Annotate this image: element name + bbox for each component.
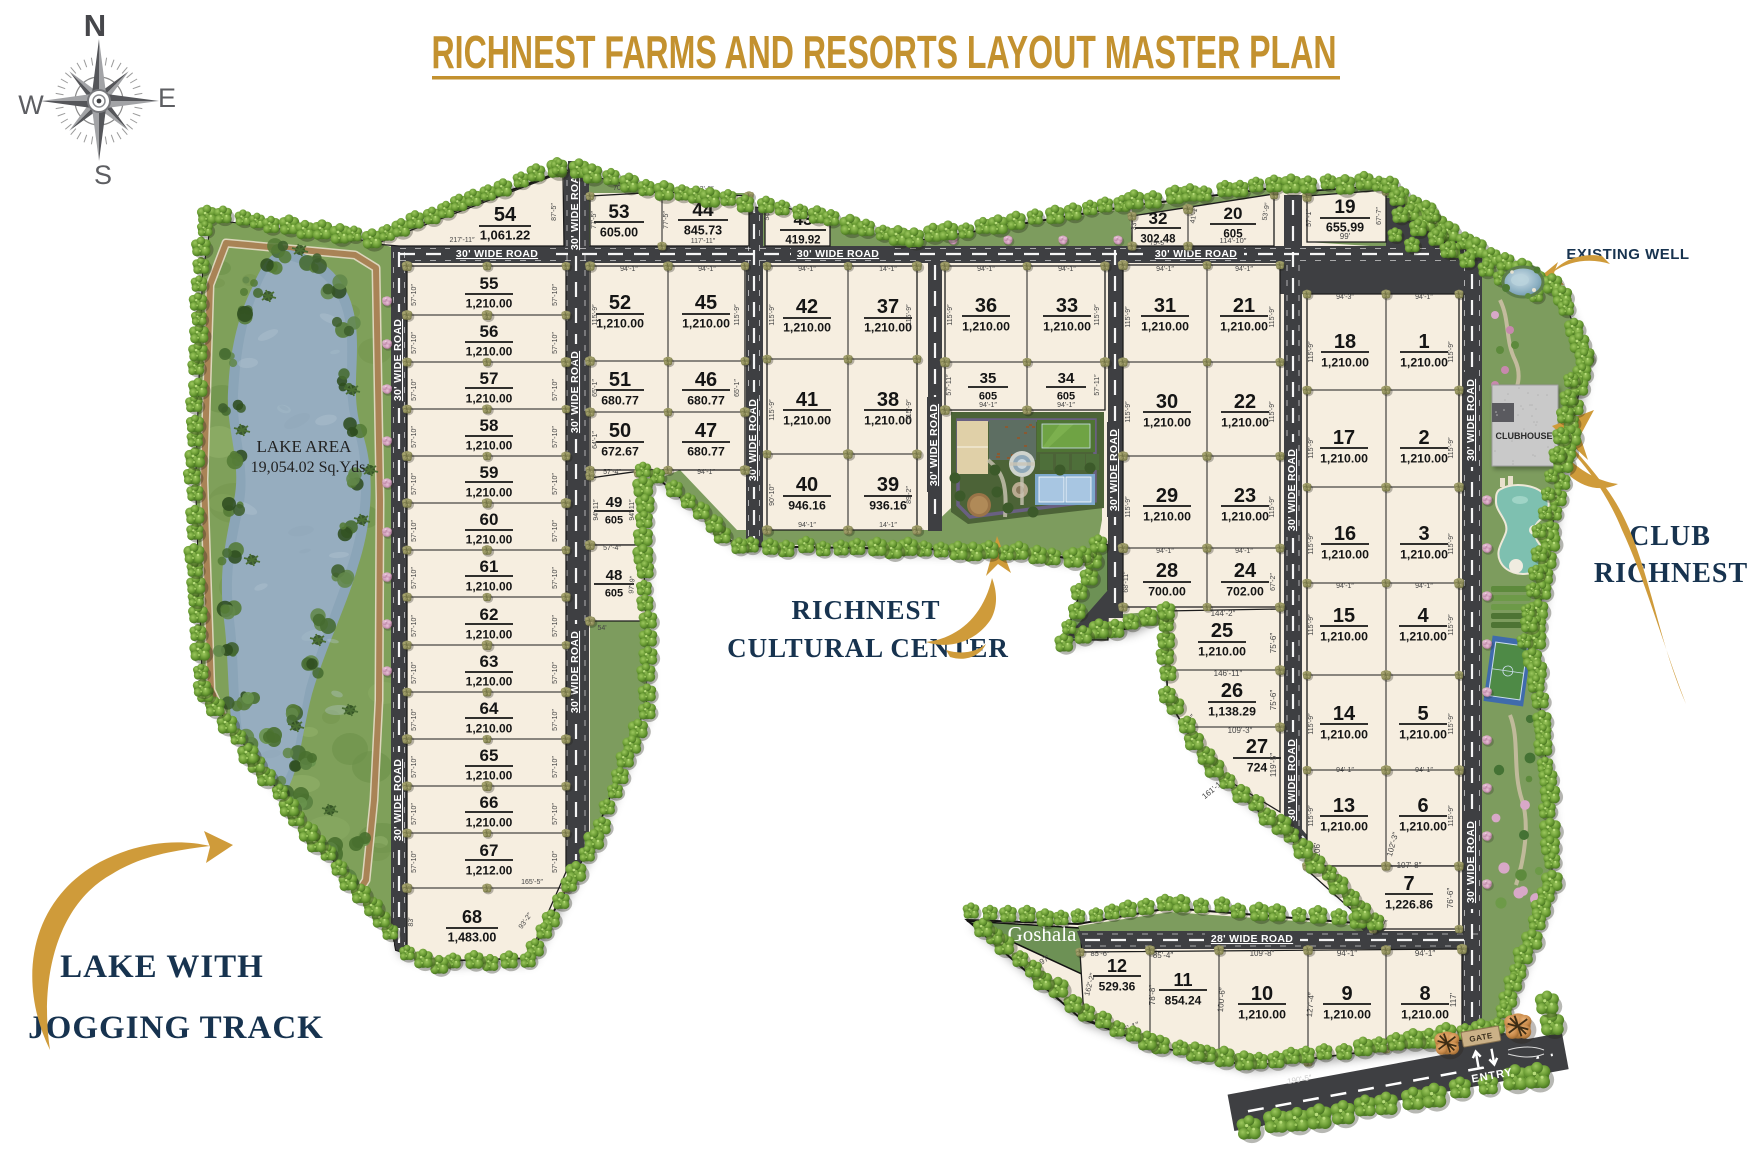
svg-text:CLUB: CLUB xyxy=(1629,521,1711,552)
svg-text:4: 4 xyxy=(1417,605,1429,627)
svg-text:57'-10″: 57'-10″ xyxy=(552,520,559,542)
svg-text:1,061.22: 1,061.22 xyxy=(480,228,531,243)
svg-text:115'-9″: 115'-9″ xyxy=(1269,401,1276,423)
svg-text:53: 53 xyxy=(608,202,629,223)
svg-text:77'-5″: 77'-5″ xyxy=(663,211,670,229)
svg-text:LAKE AREA: LAKE AREA xyxy=(257,437,353,456)
svg-text:1,210.00: 1,210.00 xyxy=(1399,820,1447,834)
svg-text:5: 5 xyxy=(1417,703,1428,725)
svg-text:1,210.00: 1,210.00 xyxy=(466,533,513,547)
svg-text:115'-9″: 115'-9″ xyxy=(1308,805,1315,827)
svg-text:529.36: 529.36 xyxy=(1099,980,1136,994)
svg-text:55: 55 xyxy=(480,274,499,293)
svg-text:68'-11″: 68'-11″ xyxy=(1123,571,1130,593)
svg-text:94'-1″: 94'-1″ xyxy=(1156,266,1174,273)
svg-text:6: 6 xyxy=(1417,795,1428,817)
svg-text:64: 64 xyxy=(480,699,499,718)
svg-text:30' WIDE ROAD: 30' WIDE ROAD xyxy=(1465,379,1477,461)
svg-text:94'-1″: 94'-1″ xyxy=(1336,583,1354,590)
svg-text:115'-9″: 115'-9″ xyxy=(1308,533,1315,555)
svg-text:RICHNEST FARMS AND RESORTS LAY: RICHNEST FARMS AND RESORTS LAYOUT MASTER… xyxy=(432,26,1337,78)
svg-text:28: 28 xyxy=(1156,560,1178,582)
svg-text:1,210.00: 1,210.00 xyxy=(466,580,513,594)
svg-text:33: 33 xyxy=(1056,295,1078,317)
svg-text:83': 83' xyxy=(408,917,415,926)
svg-text:CLUBHOUSE: CLUBHOUSE xyxy=(1495,431,1552,441)
svg-text:46: 46 xyxy=(695,369,717,391)
svg-text:605: 605 xyxy=(1057,391,1075,403)
svg-text:165'-5″: 165'-5″ xyxy=(521,879,543,886)
svg-text:1,210.00: 1,210.00 xyxy=(466,486,513,500)
svg-text:64'-1″: 64'-1″ xyxy=(592,431,599,449)
svg-text:57'-10″: 57'-10″ xyxy=(552,756,559,778)
svg-text:605: 605 xyxy=(605,588,623,600)
svg-text:57'-11″: 57'-11″ xyxy=(1094,374,1101,396)
svg-text:57'-10″: 57'-10″ xyxy=(411,709,418,731)
svg-text:41: 41 xyxy=(796,389,818,411)
svg-text:JOGGING TRACK: JOGGING TRACK xyxy=(28,1010,324,1046)
svg-text:78'-8″: 78'-8″ xyxy=(1148,985,1157,1006)
svg-text:1,210.00: 1,210.00 xyxy=(783,414,831,428)
svg-text:1,210.00: 1,210.00 xyxy=(1399,728,1447,742)
svg-text:60: 60 xyxy=(480,510,499,529)
svg-text:18: 18 xyxy=(1334,331,1356,353)
svg-text:30' WIDE ROAD: 30' WIDE ROAD xyxy=(1465,821,1477,903)
svg-text:10: 10 xyxy=(1251,983,1273,1005)
svg-text:57'-10″: 57'-10″ xyxy=(552,851,559,873)
svg-text:1,210.00: 1,210.00 xyxy=(466,769,513,783)
svg-text:30: 30 xyxy=(1156,391,1178,413)
svg-text:66: 66 xyxy=(480,793,499,812)
svg-text:24: 24 xyxy=(1234,560,1257,582)
svg-text:32: 32 xyxy=(1149,209,1168,228)
svg-text:115'-9″: 115'-9″ xyxy=(1308,614,1315,636)
svg-text:1,210.00: 1,210.00 xyxy=(682,317,730,331)
svg-text:115'-9″: 115'-9″ xyxy=(1125,496,1132,518)
svg-text:31: 31 xyxy=(1154,295,1176,317)
svg-text:30' WIDE ROAD: 30' WIDE ROAD xyxy=(928,404,940,486)
svg-text:14'-1″: 14'-1″ xyxy=(879,522,897,529)
svg-text:57'-10″: 57'-10″ xyxy=(411,615,418,637)
svg-text:115'-9″: 115'-9″ xyxy=(769,304,776,326)
svg-text:94'-1″: 94'-1″ xyxy=(1058,266,1076,273)
svg-text:94'-1″: 94'-1″ xyxy=(1415,949,1436,958)
svg-text:94'-1″: 94'-1″ xyxy=(1415,767,1433,774)
svg-text:115'-9″: 115'-9″ xyxy=(1448,437,1455,459)
svg-text:115'-9″: 115'-9″ xyxy=(1308,713,1315,735)
svg-text:1,210.00: 1,210.00 xyxy=(466,628,513,642)
svg-text:680.77: 680.77 xyxy=(601,394,639,408)
svg-text:13: 13 xyxy=(1333,795,1355,817)
svg-text:1,210.00: 1,210.00 xyxy=(1321,548,1369,562)
svg-text:57'-10″: 57'-10″ xyxy=(411,520,418,542)
svg-text:57'-10″: 57'-10″ xyxy=(411,567,418,589)
svg-text:52: 52 xyxy=(609,292,631,314)
svg-text:115'-9″: 115'-9″ xyxy=(1308,437,1315,459)
svg-text:115'-9″: 115'-9″ xyxy=(947,304,954,326)
svg-text:57'-1″: 57'-1″ xyxy=(1306,209,1313,227)
svg-text:1,210.00: 1,210.00 xyxy=(1323,1008,1371,1022)
svg-text:605.00: 605.00 xyxy=(600,226,638,240)
svg-text:1,210.00: 1,210.00 xyxy=(466,392,513,406)
svg-text:51: 51 xyxy=(609,369,631,391)
svg-text:1,138.29: 1,138.29 xyxy=(1208,705,1256,719)
svg-text:115'-9″: 115'-9″ xyxy=(1308,341,1315,363)
svg-text:57'-4″: 57'-4″ xyxy=(603,545,621,552)
svg-text:38: 38 xyxy=(877,389,899,411)
svg-text:1,210.00: 1,210.00 xyxy=(1043,320,1091,334)
svg-text:39: 39 xyxy=(877,474,899,496)
svg-text:109'-8″: 109'-8″ xyxy=(1250,949,1275,958)
svg-text:68: 68 xyxy=(462,907,482,927)
svg-text:87'-5″: 87'-5″ xyxy=(551,203,558,221)
svg-text:67: 67 xyxy=(480,841,499,860)
svg-text:854.24: 854.24 xyxy=(1165,994,1202,1008)
svg-text:1,210.00: 1,210.00 xyxy=(1400,356,1448,370)
svg-text:25: 25 xyxy=(1211,620,1233,642)
svg-text:22: 22 xyxy=(1234,391,1256,413)
svg-text:45: 45 xyxy=(695,292,717,314)
svg-text:67'-2″: 67'-2″ xyxy=(1270,573,1277,591)
svg-text:1,210.00: 1,210.00 xyxy=(1220,320,1268,334)
svg-text:724: 724 xyxy=(1247,761,1268,775)
svg-text:115'-9″: 115'-9″ xyxy=(769,399,776,421)
svg-text:11: 11 xyxy=(1173,970,1192,990)
svg-text:115'-9″: 115'-9″ xyxy=(1094,304,1101,326)
svg-text:1,210.00: 1,210.00 xyxy=(1401,1008,1449,1022)
svg-text:936.16: 936.16 xyxy=(869,499,907,513)
svg-text:115'-9″: 115'-9″ xyxy=(1448,341,1455,363)
svg-text:57'-10″: 57'-10″ xyxy=(411,851,418,873)
svg-text:119'-5″: 119'-5″ xyxy=(1269,753,1278,777)
svg-text:1,212.00: 1,212.00 xyxy=(466,864,513,878)
svg-text:1,210.00: 1,210.00 xyxy=(1320,728,1368,742)
svg-text:115'-9″: 115'-9″ xyxy=(1269,496,1276,518)
svg-text:47: 47 xyxy=(695,420,717,442)
svg-text:8: 8 xyxy=(1419,983,1430,1005)
svg-text:75'-5″: 75'-5″ xyxy=(1150,240,1167,247)
svg-text:94'-1″: 94'-1″ xyxy=(1336,767,1354,774)
svg-text:16: 16 xyxy=(1334,523,1356,545)
svg-text:30' WIDE ROAD: 30' WIDE ROAD xyxy=(1155,248,1237,260)
svg-text:946.16: 946.16 xyxy=(788,499,826,513)
svg-text:144'-2″: 144'-2″ xyxy=(1211,609,1236,618)
svg-text:605: 605 xyxy=(979,391,997,403)
svg-text:90'-10″: 90'-10″ xyxy=(769,484,776,506)
svg-text:57'-10″: 57'-10″ xyxy=(411,426,418,448)
svg-text:115'-9″: 115'-9″ xyxy=(906,304,913,326)
svg-text:94'-1″: 94'-1″ xyxy=(698,266,716,273)
svg-text:LAKE WITH: LAKE WITH xyxy=(60,949,264,985)
svg-text:94'-1″: 94'-1″ xyxy=(1415,294,1433,301)
svg-text:RICHNEST: RICHNEST xyxy=(791,595,940,625)
svg-text:57'-10″: 57'-10″ xyxy=(411,473,418,495)
svg-text:1,210.00: 1,210.00 xyxy=(466,439,513,453)
svg-text:94'-3″: 94'-3″ xyxy=(1336,294,1354,301)
svg-text:57'-10″: 57'-10″ xyxy=(411,379,418,401)
svg-text:67'-7″: 67'-7″ xyxy=(1376,207,1383,225)
svg-text:40: 40 xyxy=(796,474,818,496)
svg-text:57'-10″: 57'-10″ xyxy=(411,662,418,684)
svg-text:94'-1″: 94'-1″ xyxy=(798,266,816,273)
svg-text:115'-9″: 115'-9″ xyxy=(1448,713,1455,735)
svg-text:94'-1″: 94'-1″ xyxy=(620,266,638,273)
svg-text:23: 23 xyxy=(1234,485,1256,507)
svg-text:57'-10″: 57'-10″ xyxy=(411,756,418,778)
svg-text:700.00: 700.00 xyxy=(1148,585,1186,599)
svg-text:30' WIDE ROAD: 30' WIDE ROAD xyxy=(1108,429,1120,511)
svg-text:29: 29 xyxy=(1156,485,1178,507)
svg-text:680.77: 680.77 xyxy=(687,394,725,408)
svg-text:48: 48 xyxy=(606,567,623,584)
svg-text:94'-1″: 94'-1″ xyxy=(1057,402,1075,409)
svg-text:59: 59 xyxy=(480,463,499,482)
svg-text:94'-1″: 94'-1″ xyxy=(1415,583,1433,590)
svg-text:115'-9″: 115'-9″ xyxy=(592,304,599,326)
svg-text:77'-5″: 77'-5″ xyxy=(591,211,598,229)
svg-text:217'-11″: 217'-11″ xyxy=(449,237,475,244)
svg-text:W: W xyxy=(18,90,44,120)
svg-text:1,210.00: 1,210.00 xyxy=(1238,1008,1286,1022)
svg-text:57'-11″: 57'-11″ xyxy=(946,374,953,396)
svg-text:680.77: 680.77 xyxy=(687,445,725,459)
svg-text:14'-1″: 14'-1″ xyxy=(879,266,897,273)
svg-text:20: 20 xyxy=(1224,204,1243,223)
svg-text:S: S xyxy=(94,160,112,190)
svg-text:1,210.00: 1,210.00 xyxy=(1320,630,1368,644)
svg-text:E: E xyxy=(158,83,176,113)
svg-text:26: 26 xyxy=(1221,680,1243,702)
svg-text:28' WIDE ROAD: 28' WIDE ROAD xyxy=(1211,933,1293,945)
svg-text:1,210.00: 1,210.00 xyxy=(1141,320,1189,334)
svg-text:1,210.00: 1,210.00 xyxy=(1143,510,1191,524)
svg-text:14: 14 xyxy=(1333,703,1356,725)
svg-text:36: 36 xyxy=(975,295,997,317)
svg-text:1,210.00: 1,210.00 xyxy=(466,722,513,736)
svg-text:57'-10″: 57'-10″ xyxy=(411,803,418,825)
svg-text:57'-10″: 57'-10″ xyxy=(552,332,559,354)
svg-text:1,210.00: 1,210.00 xyxy=(864,414,912,428)
svg-text:54': 54' xyxy=(597,625,606,632)
svg-text:49: 49 xyxy=(606,494,623,511)
svg-text:1,210.00: 1,210.00 xyxy=(1399,630,1447,644)
svg-text:1,210.00: 1,210.00 xyxy=(1400,548,1448,562)
svg-text:1,210.00: 1,210.00 xyxy=(1320,820,1368,834)
svg-text:115'-9″: 115'-9″ xyxy=(1269,306,1276,328)
svg-text:65: 65 xyxy=(480,746,499,765)
svg-text:115'-9″: 115'-9″ xyxy=(906,399,913,421)
svg-text:N: N xyxy=(84,8,106,43)
svg-text:30' WIDE ROAD: 30' WIDE ROAD xyxy=(392,759,404,841)
svg-text:3: 3 xyxy=(1418,523,1429,545)
svg-text:114'-10″: 114'-10″ xyxy=(1220,236,1247,245)
svg-text:1,210.00: 1,210.00 xyxy=(596,317,644,331)
svg-text:57'-10″: 57'-10″ xyxy=(411,284,418,306)
svg-text:57'-10″: 57'-10″ xyxy=(552,426,559,448)
svg-text:94'-1″: 94'-1″ xyxy=(697,469,715,476)
svg-text:1,210.00: 1,210.00 xyxy=(1400,452,1448,466)
svg-text:117'-11″: 117'-11″ xyxy=(691,238,716,245)
svg-text:76'-6″: 76'-6″ xyxy=(1446,888,1455,909)
svg-text:115'-9″: 115'-9″ xyxy=(1125,401,1132,423)
svg-text:1,210.00: 1,210.00 xyxy=(783,321,831,335)
svg-text:7: 7 xyxy=(1403,873,1414,895)
svg-text:65'-1″: 65'-1″ xyxy=(592,379,599,397)
svg-text:33': 33' xyxy=(1131,221,1139,231)
svg-text:94'-1″: 94'-1″ xyxy=(1235,266,1253,273)
svg-text:75'-6″: 75'-6″ xyxy=(1269,633,1278,654)
svg-text:42: 42 xyxy=(796,296,818,318)
svg-text:50: 50 xyxy=(609,420,631,442)
svg-text:35: 35 xyxy=(980,370,997,387)
svg-text:94'-1″: 94'-1″ xyxy=(1156,548,1174,555)
svg-text:94'-1″: 94'-1″ xyxy=(798,522,816,529)
svg-text:57'-10″: 57'-10″ xyxy=(552,379,559,401)
svg-text:54: 54 xyxy=(494,204,517,226)
svg-text:63: 63 xyxy=(480,652,499,671)
svg-text:115'-9″: 115'-9″ xyxy=(734,304,741,326)
svg-text:85'-6″: 85'-6″ xyxy=(1090,949,1109,958)
svg-text:62: 62 xyxy=(480,605,499,624)
svg-text:1,483.00: 1,483.00 xyxy=(448,931,497,945)
svg-text:1,210.00: 1,210.00 xyxy=(1321,356,1369,370)
svg-text:30' WIDE ROAD: 30' WIDE ROAD xyxy=(392,319,404,401)
svg-text:1,210.00: 1,210.00 xyxy=(864,321,912,335)
svg-text:1,210.00: 1,210.00 xyxy=(466,297,513,311)
svg-text:57'-10″: 57'-10″ xyxy=(552,473,559,495)
svg-text:89'-2″: 89'-2″ xyxy=(906,486,913,504)
svg-text:30' WIDE ROAD: 30' WIDE ROAD xyxy=(1286,449,1298,531)
svg-text:58: 58 xyxy=(480,416,499,435)
svg-text:57'-10″: 57'-10″ xyxy=(552,662,559,684)
svg-text:1,210.00: 1,210.00 xyxy=(466,345,513,359)
svg-text:57'-10″: 57'-10″ xyxy=(552,803,559,825)
svg-text:1,210.00: 1,210.00 xyxy=(1320,452,1368,466)
svg-text:57'-10″: 57'-10″ xyxy=(552,567,559,589)
svg-text:702.00: 702.00 xyxy=(1226,585,1264,599)
svg-text:RICHNEST: RICHNEST xyxy=(1594,558,1748,589)
svg-text:1: 1 xyxy=(1418,331,1429,353)
svg-text:1,210.00: 1,210.00 xyxy=(466,675,513,689)
svg-text:9: 9 xyxy=(1341,983,1352,1005)
svg-text:15: 15 xyxy=(1333,605,1355,627)
svg-text:1,226.86: 1,226.86 xyxy=(1385,898,1433,912)
svg-text:115'-9″: 115'-9″ xyxy=(1125,306,1132,328)
svg-text:57'-10″: 57'-10″ xyxy=(552,709,559,731)
svg-text:17: 17 xyxy=(1333,427,1355,449)
svg-text:117': 117' xyxy=(1449,992,1458,1007)
svg-text:115'-9″: 115'-9″ xyxy=(1448,533,1455,555)
svg-text:94'-1″: 94'-1″ xyxy=(979,402,997,409)
svg-text:1,210.00: 1,210.00 xyxy=(1198,645,1246,659)
svg-text:57'-10″: 57'-10″ xyxy=(552,615,559,637)
svg-text:75'-6″: 75'-6″ xyxy=(1269,690,1278,711)
svg-text:1,210.00: 1,210.00 xyxy=(962,320,1010,334)
svg-text:37: 37 xyxy=(877,296,899,318)
svg-text:12: 12 xyxy=(1107,956,1127,976)
svg-text:115'-9″: 115'-9″ xyxy=(1448,614,1455,636)
svg-text:2: 2 xyxy=(1418,427,1429,449)
svg-text:65'-1″: 65'-1″ xyxy=(734,379,741,397)
svg-text:672.67: 672.67 xyxy=(601,445,639,459)
svg-text:605: 605 xyxy=(605,515,623,527)
svg-text:57: 57 xyxy=(480,369,499,388)
svg-text:99': 99' xyxy=(1340,232,1351,241)
svg-text:1,210.00: 1,210.00 xyxy=(1221,510,1269,524)
svg-text:419.92: 419.92 xyxy=(785,235,820,247)
svg-text:61: 61 xyxy=(480,557,499,576)
svg-text:27: 27 xyxy=(1246,736,1268,758)
svg-text:845.73: 845.73 xyxy=(684,224,722,238)
svg-text:19: 19 xyxy=(1334,197,1355,218)
svg-text:34: 34 xyxy=(1058,370,1075,387)
svg-text:109'-3″: 109'-3″ xyxy=(1228,726,1253,735)
svg-text:56: 56 xyxy=(480,322,499,341)
svg-text:19,054.02 Sq.Yds: 19,054.02 Sq.Yds xyxy=(251,459,366,476)
svg-text:30' WIDE ROAD: 30' WIDE ROAD xyxy=(456,248,538,260)
svg-text:146'-11″: 146'-11″ xyxy=(1214,669,1243,678)
svg-text:107'-8″: 107'-8″ xyxy=(1397,861,1422,870)
svg-text:94'-1″: 94'-1″ xyxy=(977,266,995,273)
svg-text:115'-9″: 115'-9″ xyxy=(1448,805,1455,827)
svg-text:1,210.00: 1,210.00 xyxy=(1221,416,1269,430)
svg-text:57'-10″: 57'-10″ xyxy=(411,332,418,354)
svg-text:30' WIDE ROAD: 30' WIDE ROAD xyxy=(1286,739,1298,821)
svg-text:21: 21 xyxy=(1233,295,1255,317)
svg-text:1,210.00: 1,210.00 xyxy=(1143,416,1191,430)
svg-text:94'-11″: 94'-11″ xyxy=(593,499,600,521)
svg-text:57'-10″: 57'-10″ xyxy=(552,284,559,306)
svg-text:30' WIDE ROAD: 30' WIDE ROAD xyxy=(797,248,879,260)
svg-text:1,210.00: 1,210.00 xyxy=(466,816,513,830)
svg-text:30' WIDE ROAD: 30' WIDE ROAD xyxy=(569,631,581,713)
svg-text:94'-1″: 94'-1″ xyxy=(1337,949,1358,958)
svg-text:94'-1″: 94'-1″ xyxy=(1235,548,1253,555)
